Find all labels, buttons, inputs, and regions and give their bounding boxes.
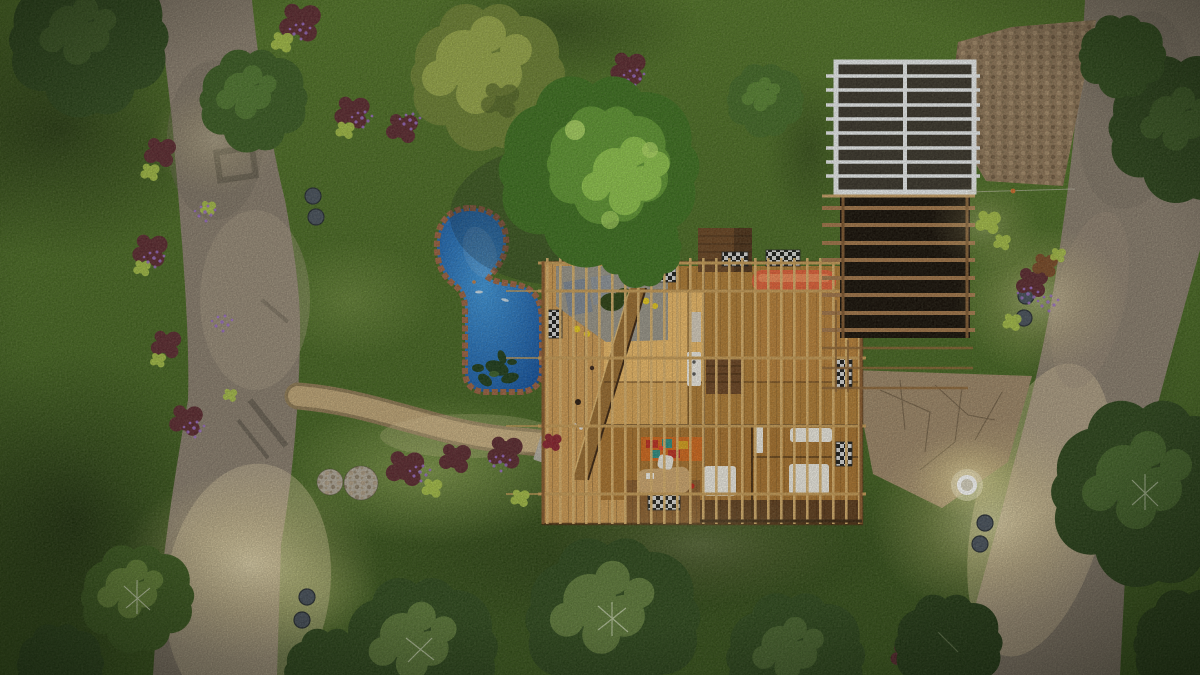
vignette [0, 0, 1200, 675]
aerial-render-stage [0, 0, 1200, 675]
aerial-site-plan [0, 0, 1200, 675]
